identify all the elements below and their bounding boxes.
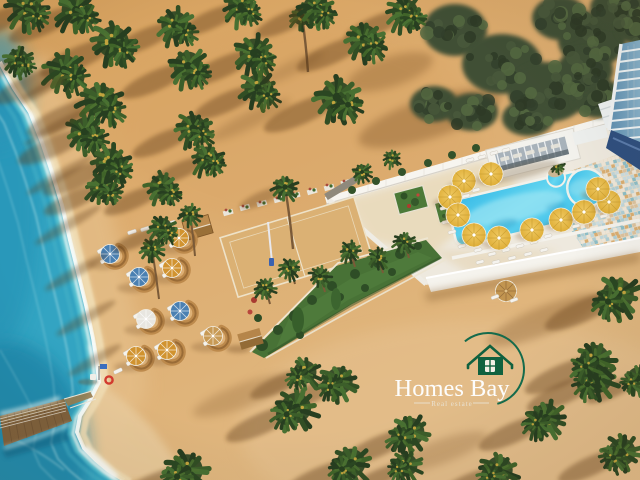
svg-text:Real estate: Real estate xyxy=(431,400,473,408)
svg-text:Homes Bay: Homes Bay xyxy=(395,375,511,402)
